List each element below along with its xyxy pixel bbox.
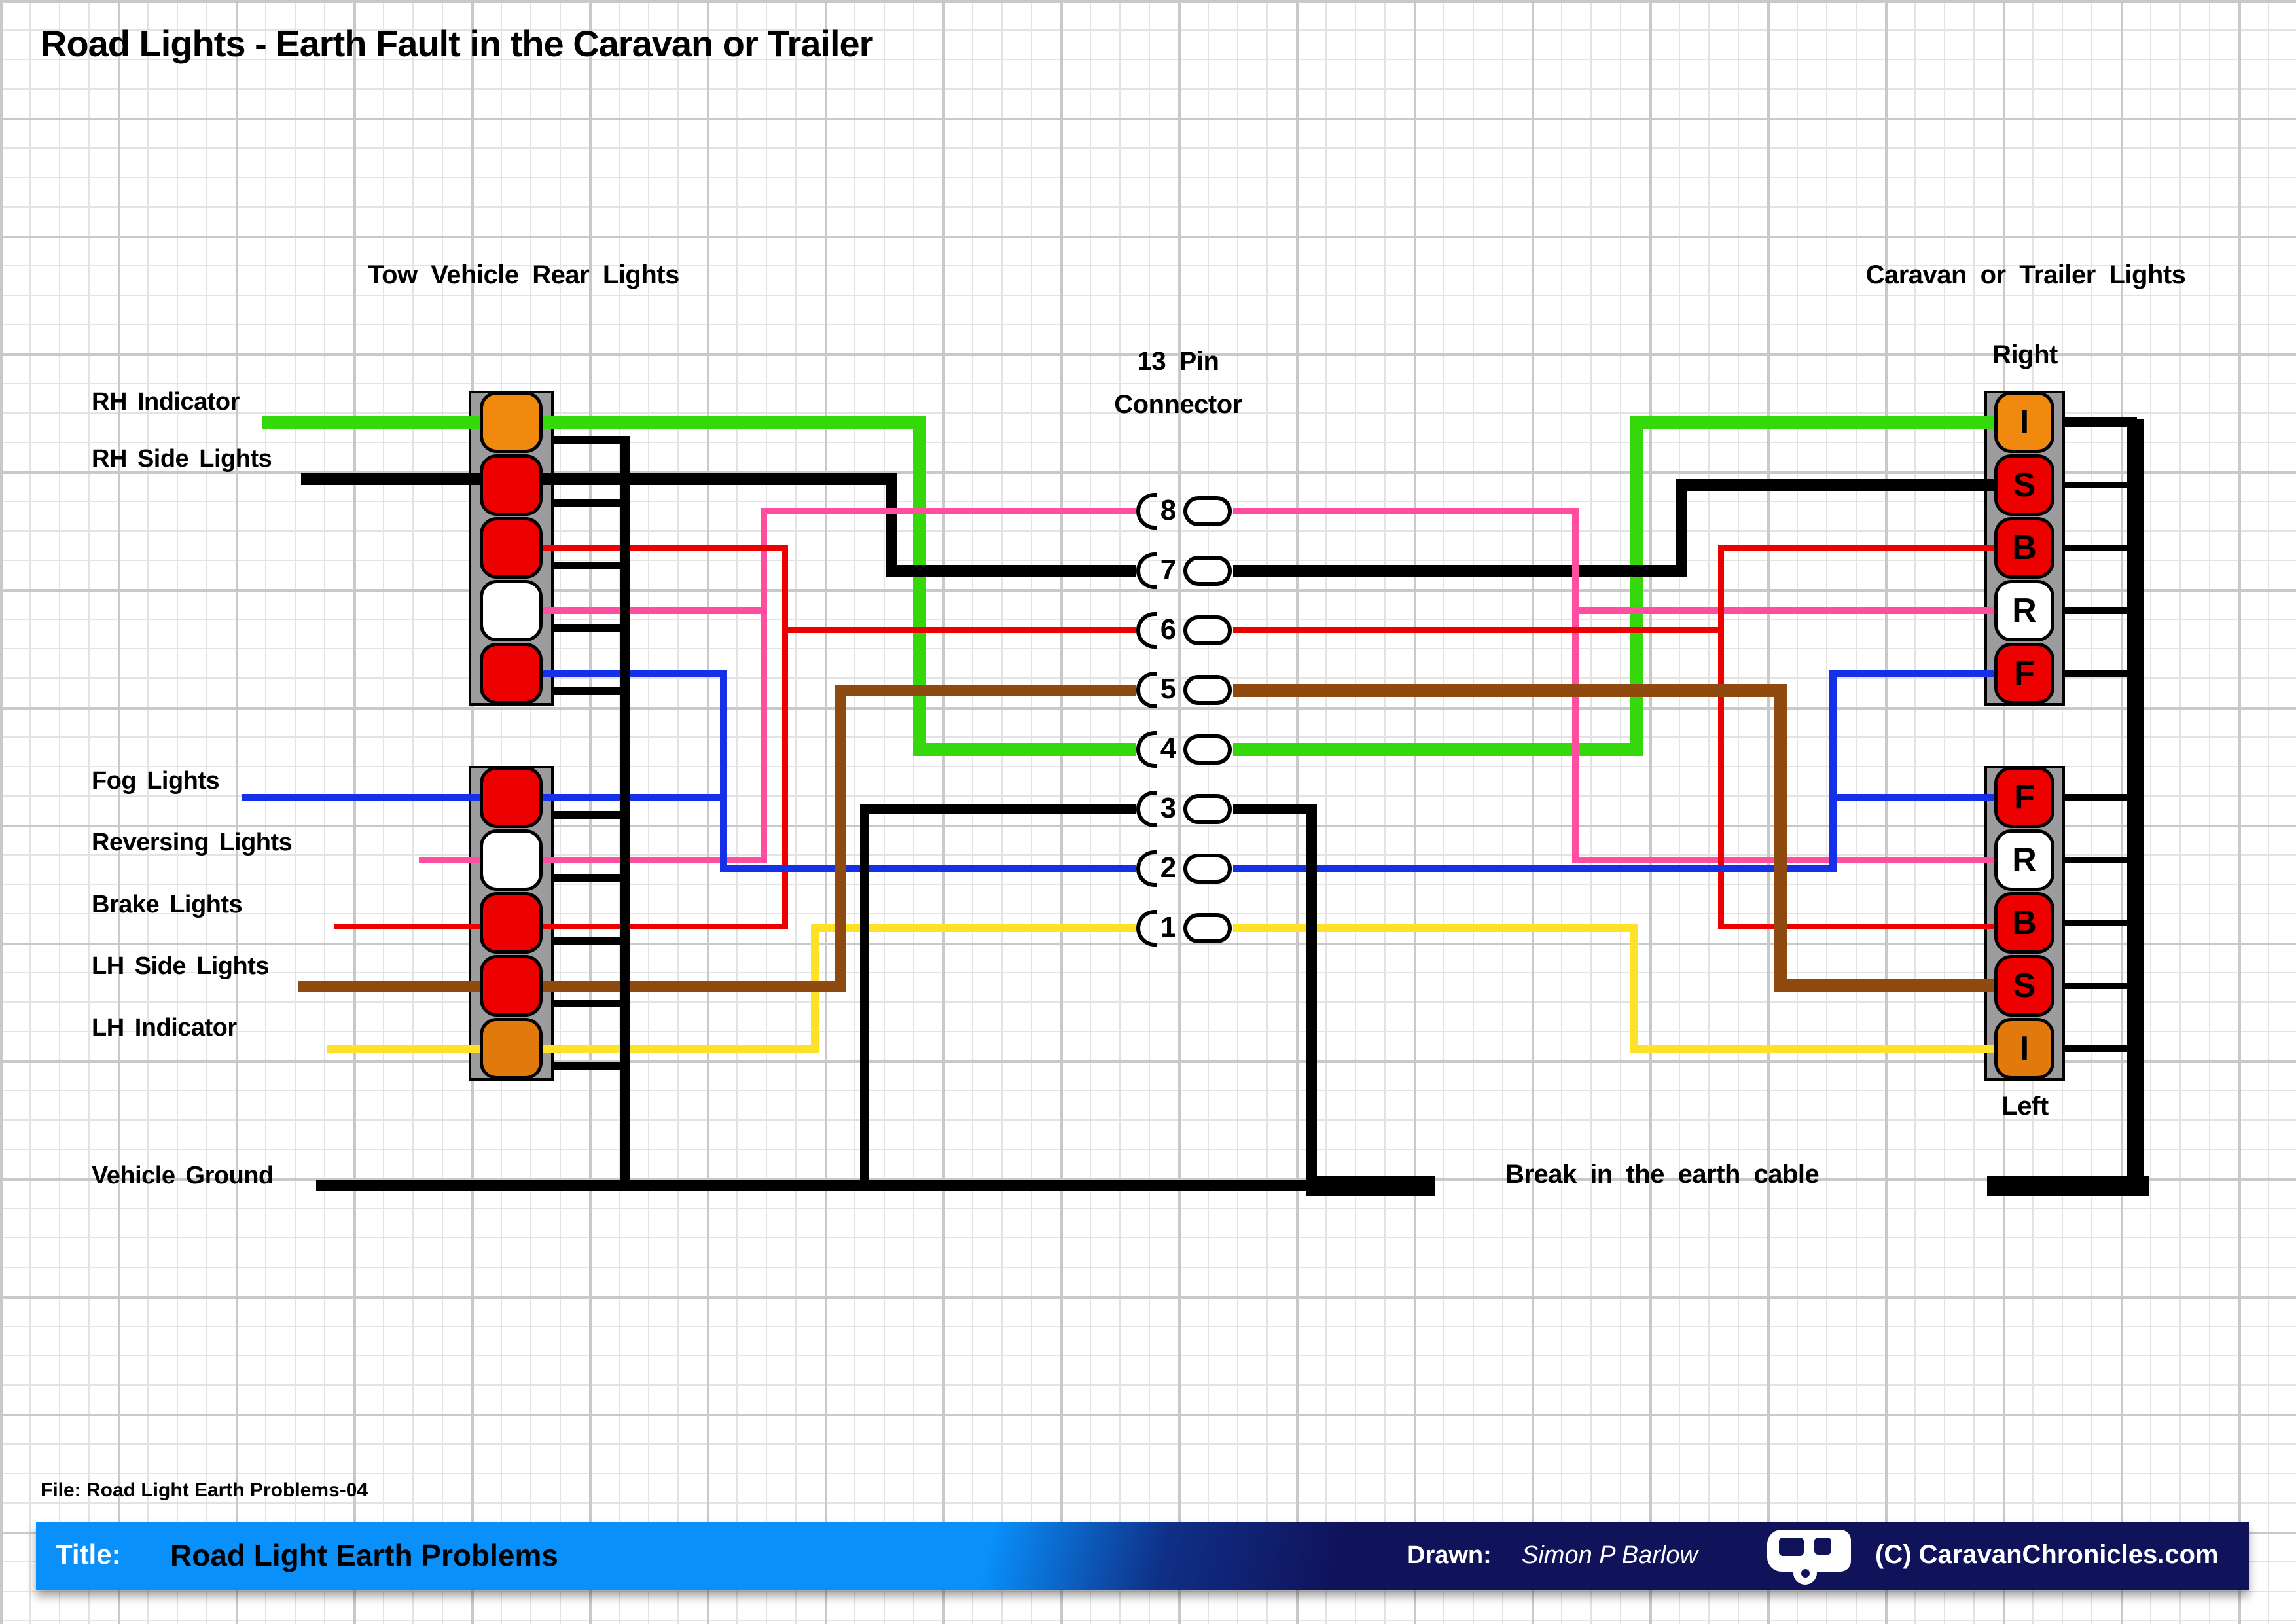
pin-1-number: 1 [1153,911,1183,944]
wire-label-fog-lights: Fog Lights [92,767,219,795]
pin-8-socket [1183,496,1232,526]
black-wire-segment [886,565,1136,577]
black-wire-segment [554,562,626,569]
caravan-icon [1767,1530,1859,1582]
pin-6-socket [1183,615,1232,645]
tow-right-cluster-lamp-5 [480,643,543,704]
wire-label-lh-indicator: LH Indicator [92,1014,237,1042]
black-wire-segment [554,624,626,632]
break-note: Break in the earth cable [1505,1160,1819,1189]
black-wire-segment [886,473,897,577]
black-wire-segment [860,804,869,1190]
black-wire-segment [1233,565,1687,577]
black-wire-segment [1987,1176,2149,1196]
black-wire-segment [316,1180,1316,1191]
black-wire-segment [2065,920,2135,926]
black-wire-segment [2127,419,2144,1185]
tow-left-cluster-lamp-5 [480,1018,543,1079]
footer-copyright: (C) CaravanChronicles.com [1875,1540,2219,1570]
wire-label-brake-lights: Brake Lights [92,891,242,919]
black-wire-segment [2065,545,2135,551]
caravan-right-cluster-lamp-F: F [1994,643,2054,704]
blue-wire-segment [1829,670,1998,677]
blue-wire-segment [720,865,1136,872]
blue-wire-segment [1829,794,1998,801]
black-wire-segment [2065,670,2135,677]
tow-vehicle-heading: Tow Vehicle Rear Lights [327,261,720,290]
black-wire-segment [554,937,626,945]
green-wire-segment [262,416,914,429]
black-wire-segment [301,473,886,485]
black-wire-segment [1233,804,1316,814]
black-wire-segment [554,1062,626,1070]
pin-3-socket [1183,794,1232,824]
tow-right-cluster-lamp-4 [480,580,543,641]
pink-wire-segment [419,857,764,863]
footer-bar: Title: Road Light Earth Problems Drawn: … [36,1522,2249,1590]
yellow-wire-segment [1630,1045,1998,1053]
green-wire-segment [1630,416,1998,429]
blue-wire-segment [1233,865,1837,872]
brown-wire-segment [1774,979,1998,992]
pin-8-number: 8 [1153,494,1183,527]
right-cluster-label: Right [1927,340,2123,370]
caravan-right-cluster-lamp-R: R [1994,580,2054,641]
red-wire-segment [1233,627,1724,633]
green-wire-segment [913,416,926,756]
connector-heading-line2: Connector [1080,390,1276,420]
footer-drawn-value: Simon P Barlow [1522,1542,1698,1570]
black-wire-segment [554,499,626,507]
black-wire-segment [2065,1045,2135,1052]
pin-6-number: 6 [1153,613,1183,646]
black-wire-segment [1676,479,1998,491]
black-wire-segment [554,874,626,882]
green-wire-segment [1233,743,1643,756]
left-cluster-label: Left [1927,1092,2123,1121]
red-wire-segment [782,627,1136,633]
wire-label-rh-indicator: RH Indicator [92,388,240,416]
tow-left-cluster-lamp-3 [480,892,543,954]
tow-left-cluster-lamp-4 [480,955,543,1017]
brown-wire-segment [1233,684,1787,697]
yellow-wire-segment [1630,924,1638,1053]
black-wire-segment [1676,479,1687,577]
black-wire-segment [2065,417,2137,427]
black-wire-segment [860,804,1136,814]
black-wire-segment [2065,607,2135,614]
wire-label-reversing-lights: Reversing Lights [92,829,292,857]
vehicle-ground-label: Vehicle Ground [92,1162,274,1190]
pin-5-number: 5 [1153,673,1183,706]
wiring-diagram-page: { "title": "Road Lights - Earth Fault in… [0,0,2296,1624]
caravan-right-cluster-lamp-S: S [1994,454,2054,516]
brown-wire-segment [835,685,1136,696]
tow-right-cluster-lamp-1 [480,391,543,453]
red-wire-segment [334,924,788,929]
black-wire-segment [2065,983,2135,989]
pin-4-socket [1183,734,1232,765]
red-wire-segment [1718,924,1998,929]
pin-1-socket [1183,913,1232,943]
black-wire-segment [2065,857,2135,863]
black-wire-segment [2065,794,2135,801]
pin-7-number: 7 [1153,554,1183,586]
footer-title-value: Road Light Earth Problems [170,1538,558,1573]
wire-label-lh-side-lights: LH Side Lights [92,952,269,981]
caravan-right-cluster-lamp-B: B [1994,517,2054,579]
pin-2-number: 2 [1153,852,1183,884]
wire-label-rh-side-lights: RH Side Lights [92,445,272,473]
red-wire-segment [1718,545,1998,551]
black-wire-segment [1306,1176,1435,1196]
tow-left-cluster-lamp-1 [480,767,543,828]
tow-left-cluster-lamp-2 [480,829,543,891]
footer-drawn-label: Drawn: [1407,1542,1492,1570]
connector-heading-line1: 13 Pin [1080,347,1276,376]
green-wire-segment [913,743,1136,756]
brown-wire-segment [1774,684,1787,992]
caravan-left-cluster-lamp-R: R [1994,829,2054,891]
file-note: File: Road Light Earth Problems-04 [41,1479,368,1502]
pin-7-socket [1183,556,1232,586]
footer-title-label: Title: [56,1539,121,1570]
black-wire-segment [2065,482,2135,488]
pink-wire-segment [1572,607,1998,614]
pin-2-socket [1183,854,1232,884]
caravan-left-cluster-lamp-F: F [1994,767,2054,828]
tow-right-cluster-lamp-3 [480,517,543,579]
black-wire-segment [554,811,626,819]
yellow-wire-segment [1233,924,1638,932]
pink-wire-segment [1233,508,1579,514]
brown-wire-segment [298,981,846,992]
black-wire-segment [554,687,626,695]
pin-5-socket [1183,675,1232,705]
page-title: Road Lights - Earth Fault in the Caravan… [41,22,872,65]
caravan-left-cluster-lamp-B: B [1994,892,2054,954]
tow-right-cluster-lamp-2 [480,454,543,516]
yellow-wire-segment [327,1045,819,1053]
caravan-left-cluster-lamp-I: I [1994,1018,2054,1079]
pink-wire-segment [761,508,767,863]
blue-wire-segment [720,670,727,872]
caravan-heading: Caravan or Trailer Lights [1823,261,2229,290]
caravan-left-cluster-lamp-S: S [1994,955,2054,1017]
pin-3-number: 3 [1153,792,1183,825]
brown-wire-segment [835,685,846,992]
black-wire-segment [554,436,626,444]
black-wire-segment [554,1000,626,1007]
black-wire-segment [620,436,630,1182]
black-wire-segment [1306,804,1317,1184]
green-wire-segment [1630,416,1643,756]
pink-wire-segment [761,508,1136,514]
pin-4-number: 4 [1153,732,1183,765]
caravan-right-cluster-lamp-I: I [1994,391,2054,453]
blue-wire-segment [1829,670,1837,872]
